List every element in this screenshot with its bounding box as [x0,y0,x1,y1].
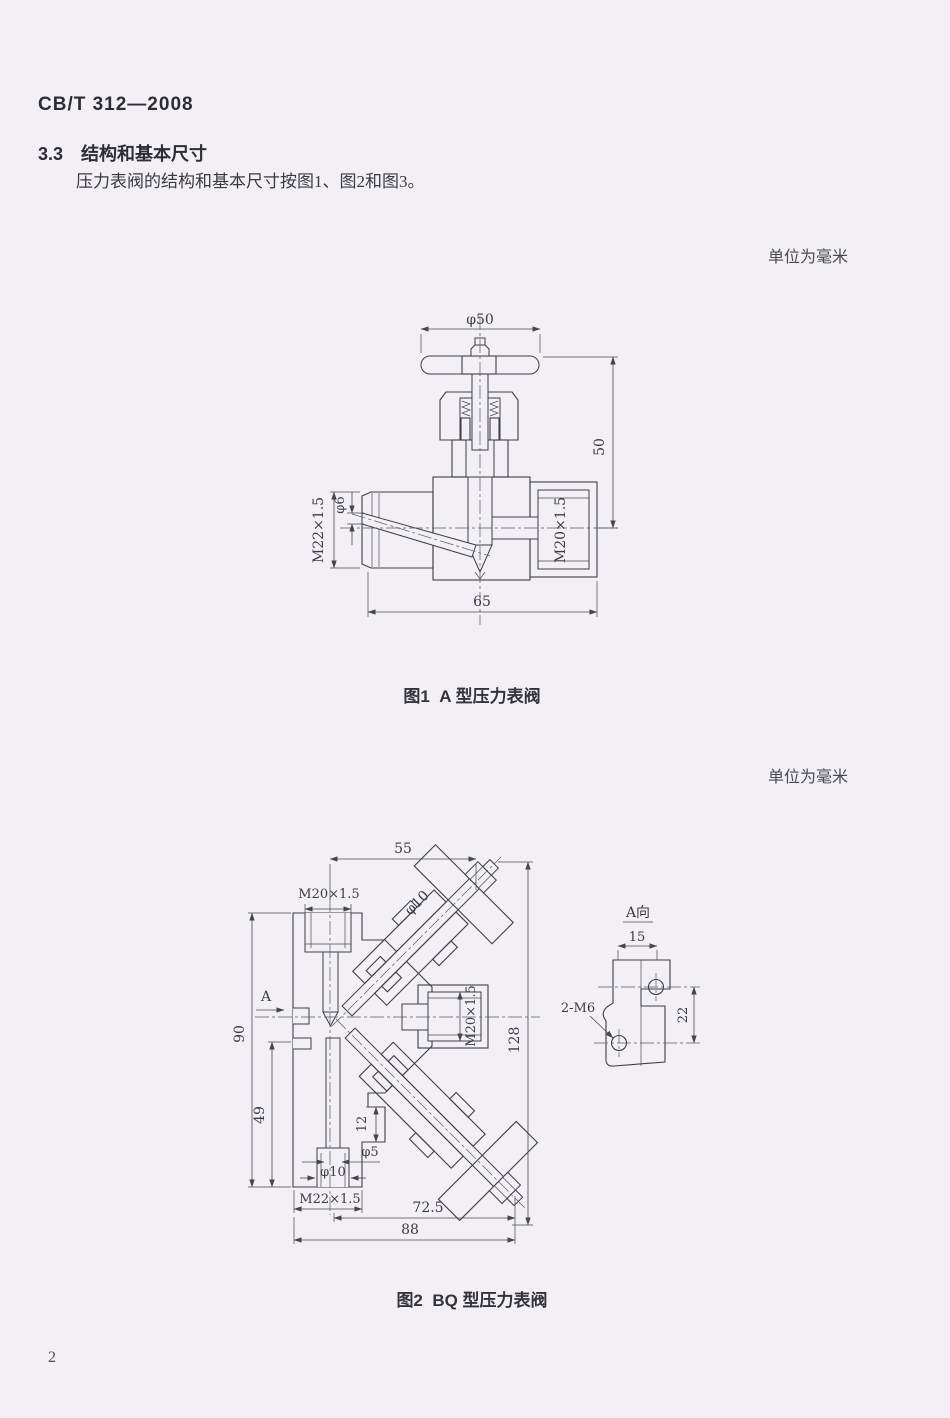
body-paragraph: 压力表阀的结构和基本尺寸按图1、图2和图3。 [76,167,425,192]
dim-width-72-5: 72.5 [412,1200,443,1216]
dim-width-88: 88 [401,1222,419,1238]
dim-inlet-thread: M22×1.5 [311,497,327,563]
figure2-caption: 图2 BQ 型压力表阀 [322,1286,622,1311]
view-direction-label: A [260,989,272,1005]
figure2-drawing: M20×1.5 55 M20×1.5 [230,835,830,1255]
aview-bracket-outline [603,960,670,1066]
top-port-cavity [305,913,351,952]
dim-width-55: 55 [394,841,412,857]
dim-width-65: 65 [473,594,491,610]
figure1-drawing: φ50 50 M22×1.5 φ6 M20×1.5 65 [295,298,640,633]
dim-stem-dia: φ10 [402,888,433,919]
dim-top-port-thread: M20×1.5 [298,887,359,902]
units-note-2: 单位为毫米 [768,763,928,787]
dim-passage-dia: φ6 [333,496,348,513]
section-heading: 3.3结构和基本尺寸 [38,140,207,166]
dim-dia-5: φ5 [361,1145,378,1160]
dim-height-49: 49 [252,1106,268,1124]
standard-number-header: CB/T 312—2008 [38,94,194,116]
dim-step-12: 12 [355,1116,370,1133]
dim-dia-10-bottom: φ10 [320,1165,346,1180]
units-note-1: 单位为毫米 [768,243,928,267]
dim-aview-15: 15 [629,930,646,945]
dim-outlet-thread: M20×1.5 [553,497,569,563]
dim-right-port-thread: M20×1.5 [464,985,479,1046]
aview-title: A向 [625,905,650,921]
figure1-caption: 图1 A 型压力表阀 [322,682,622,707]
dim-bottom-thread: M22×1.5 [299,1192,360,1207]
dim-aview-22: 22 [676,1007,691,1024]
page-number: 2 [48,1349,56,1367]
dim-height-50: 50 [592,438,608,456]
dim-height-90: 90 [232,1025,248,1043]
dim-handwheel-dia: φ50 [466,312,494,328]
dim-aview-holes: 2-M6 [561,1001,595,1016]
document-page: CB/T 312—2008 3.3结构和基本尺寸 压力表阀的结构和基本尺寸按图1… [0,0,950,1418]
section-number: 3.3 [38,144,63,164]
a-direction-view: A向 15 2-M6 22 [561,905,700,1066]
dim-height-128: 128 [507,1027,523,1054]
section-title: 结构和基本尺寸 [81,144,207,164]
upper-needle-cone [323,1012,338,1026]
